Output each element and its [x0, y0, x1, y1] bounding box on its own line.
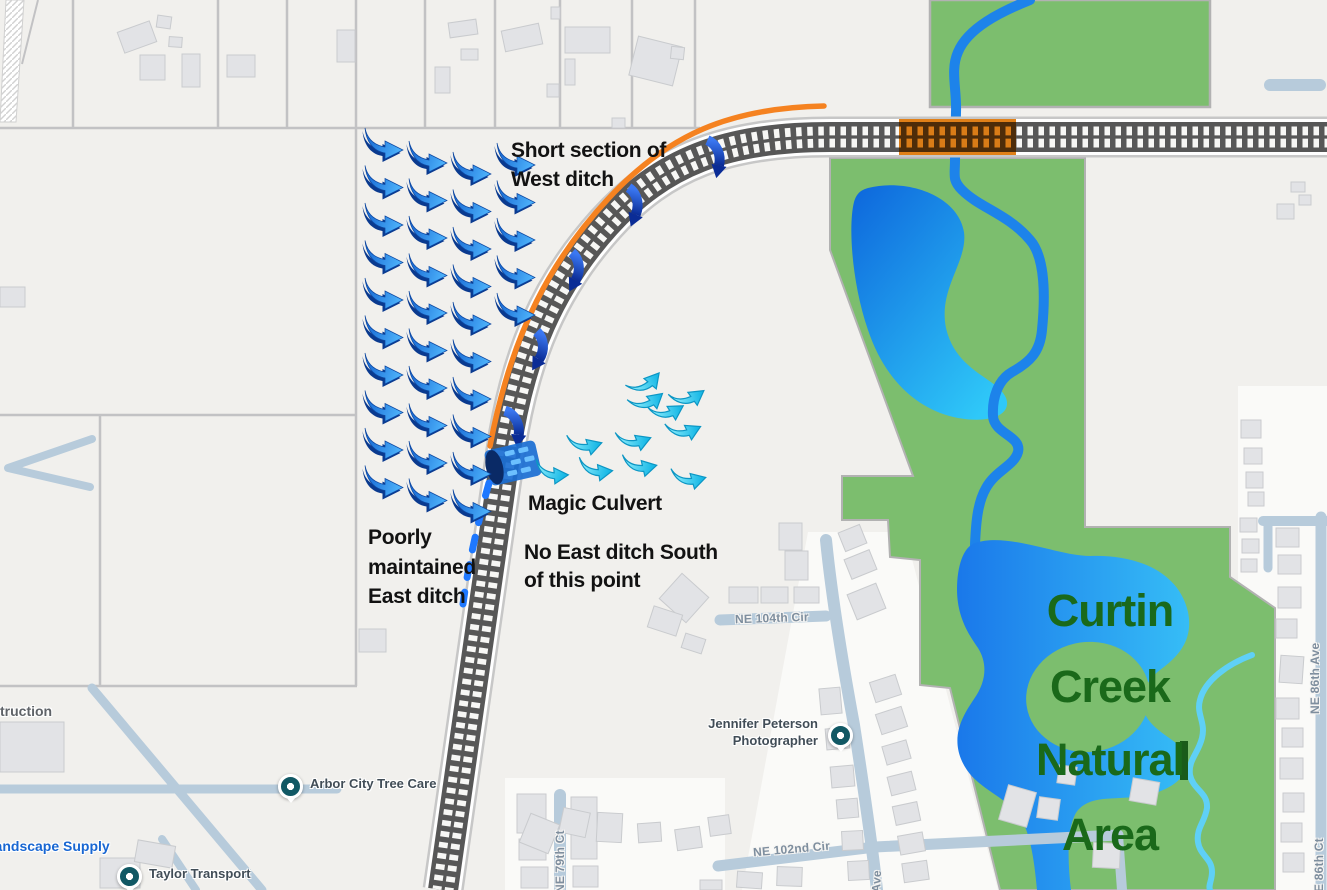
- building: [1291, 182, 1305, 192]
- building: [0, 722, 64, 772]
- building: [521, 867, 548, 888]
- building: [830, 765, 855, 788]
- building: [779, 523, 802, 550]
- building: [596, 812, 622, 842]
- building: [902, 860, 929, 882]
- building: [1283, 793, 1304, 812]
- tree-line: [1180, 741, 1188, 780]
- building: [761, 587, 788, 603]
- building: [708, 815, 731, 837]
- building: [1248, 492, 1264, 506]
- building: [1283, 853, 1304, 872]
- building: [435, 67, 450, 93]
- building: [1242, 539, 1259, 553]
- building: [1276, 619, 1297, 638]
- building: [777, 867, 803, 887]
- jennifer-peterson-pin[interactable]: [828, 723, 853, 748]
- building: [785, 551, 808, 580]
- building: [794, 587, 819, 603]
- building: [448, 19, 478, 38]
- building: [1092, 842, 1120, 868]
- orange-highlight-section: [899, 119, 1016, 155]
- building: [836, 798, 859, 819]
- building: [670, 46, 684, 59]
- building: [637, 822, 661, 843]
- building: [1057, 765, 1077, 785]
- building: [612, 118, 625, 128]
- building: [182, 54, 200, 87]
- building: [461, 49, 478, 60]
- building: [565, 27, 610, 53]
- taylor-transport-pin[interactable]: [117, 864, 142, 889]
- building: [1241, 559, 1257, 572]
- park-area: [930, 0, 1210, 107]
- building: [169, 37, 183, 48]
- building: [1129, 778, 1160, 805]
- building: [1244, 448, 1262, 464]
- building: [700, 880, 722, 890]
- building: [1240, 518, 1257, 532]
- building: [819, 687, 842, 715]
- building: [1277, 204, 1294, 219]
- building: [1279, 655, 1304, 684]
- map-graphics: [0, 0, 1327, 890]
- building: [337, 30, 355, 62]
- map-canvas[interactable]: Short section ofWest ditch Magic Culvert…: [0, 0, 1327, 890]
- building: [898, 832, 926, 855]
- building: [1282, 728, 1303, 747]
- building: [1037, 797, 1061, 821]
- building: [1278, 555, 1301, 574]
- building: [573, 866, 598, 887]
- building: [1276, 698, 1299, 719]
- building: [0, 287, 25, 307]
- building: [551, 7, 560, 19]
- building: [1280, 758, 1303, 779]
- building: [842, 830, 864, 850]
- building: [675, 826, 703, 850]
- building: [227, 55, 255, 77]
- building: [1278, 587, 1301, 608]
- building: [1299, 195, 1311, 205]
- building: [848, 860, 870, 880]
- building: [565, 59, 575, 85]
- arbor-city-pin[interactable]: [278, 774, 303, 799]
- building: [1276, 528, 1299, 547]
- building: [140, 55, 165, 80]
- building: [547, 84, 559, 97]
- road: [720, 616, 826, 620]
- building: [156, 15, 172, 29]
- building: [736, 871, 762, 889]
- building: [729, 587, 758, 603]
- building: [559, 807, 591, 837]
- building: [1241, 420, 1261, 438]
- building: [359, 629, 386, 652]
- building: [1246, 472, 1263, 488]
- building: [1281, 823, 1302, 842]
